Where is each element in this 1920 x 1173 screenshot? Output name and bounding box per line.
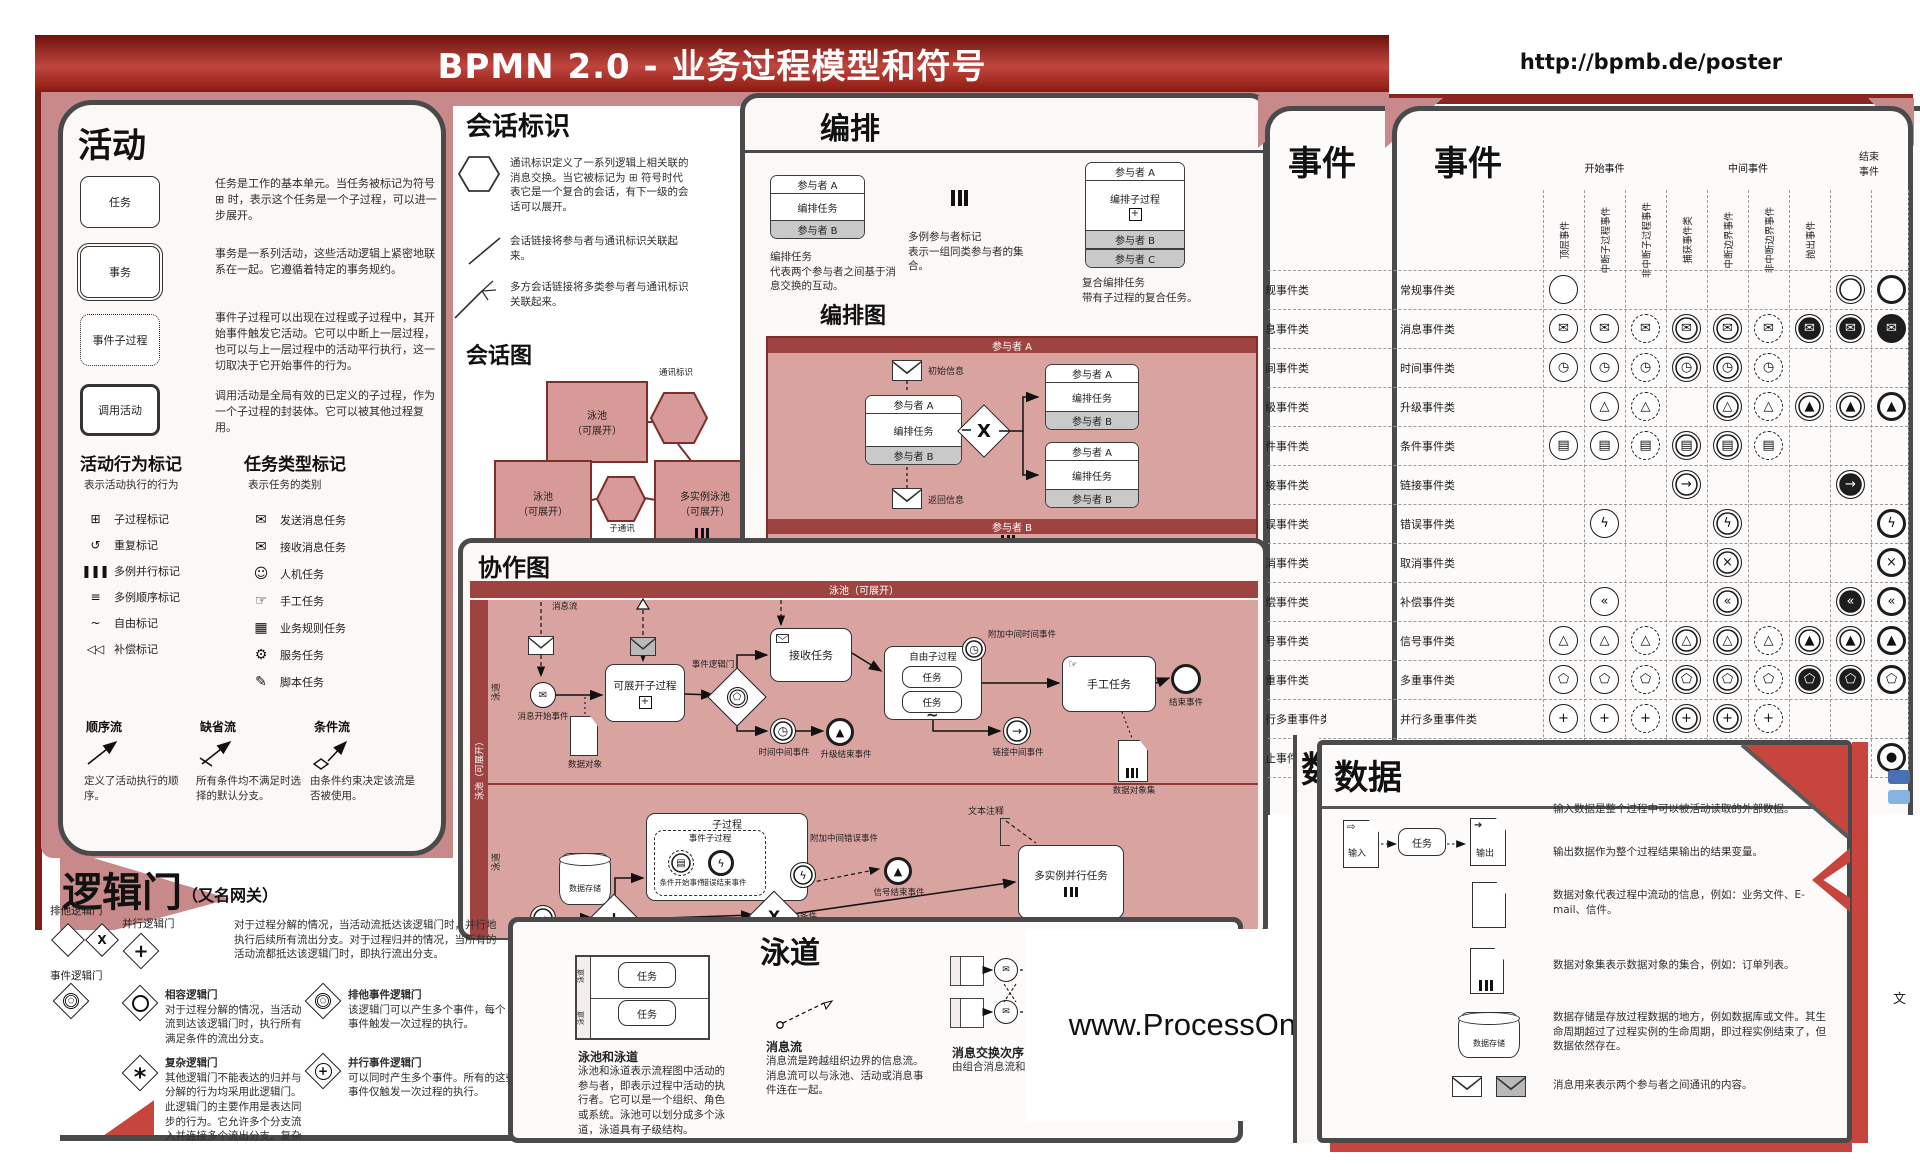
red-triangle-bottomleft <box>100 1092 154 1138</box>
behavior-marker-icon: ⊞ <box>84 512 106 526</box>
data-object-icon <box>1472 882 1506 928</box>
swimlanes-s2-desc: 消息流是跨越组织边界的信息流。消息流可以与泳池、活动或消息事件连在一起。 <box>766 1054 928 1098</box>
parallel-event-gateway-icon: + <box>305 1053 342 1090</box>
event-gateway-label: 事件逻辑门 <box>50 968 103 983</box>
tasktype-marker-item: ▦ 业务规则任务 <box>250 614 346 641</box>
conversation-link-icon <box>466 234 504 268</box>
choreography-task: 参与者 A 编排任务 参与者 B <box>770 175 865 239</box>
event-row-label-fragment: 错误事件类 <box>1266 504 1326 543</box>
behavior-marker-item: ~ 自由标记 <box>84 610 180 636</box>
conditional-flow-desc: 由条件约束决定该流是否被使用。 <box>310 774 420 803</box>
subprocess-label: 子过程 <box>712 816 742 831</box>
tasktype-marker-label: 手工任务 <box>280 593 324 609</box>
message-flow-icon <box>772 995 838 1031</box>
collab-attached-error-label: 附加中间错误事件 <box>810 834 902 845</box>
mini-task2-label: 任务 <box>637 1006 657 1021</box>
default-flow-desc: 所有条件均不满足时选择的默认分支。 <box>196 774 304 803</box>
event-row-label: 错误事件类 <box>1400 504 1510 543</box>
event-cell: ▲ <box>1795 626 1824 655</box>
tasktype-marker-item: ✎ 脚本任务 <box>250 668 346 695</box>
choreography-diagram-header: 编排图 <box>820 298 886 330</box>
event-row-label-fragment: 多重事件类 <box>1266 660 1326 699</box>
mini-lane1-label: 泳道 <box>576 961 586 991</box>
chor-task-top: 参与者 A <box>771 176 864 194</box>
event-subprocess-shape: 事件子过程 <box>80 314 160 366</box>
event-row-label-fragment: 升级事件类 <box>1266 387 1326 426</box>
conv-pool2: 泳池 （可展开） <box>494 460 592 546</box>
mini-lane1-task: 任务 <box>618 962 676 988</box>
tasktype-markers-caption: 表示任务的类别 <box>248 478 322 493</box>
chor-sub-b1: 参与者 B <box>1086 230 1184 249</box>
event-cell: ● <box>1877 743 1906 772</box>
data-item-4: 数据对象集表示数据对象的集合，例如：订单列表。 <box>1553 958 1825 973</box>
collab-error-end-label: 错误结束事件 <box>694 878 754 887</box>
conv-hex2-label: 子通讯 <box>600 524 644 535</box>
collab-message-start-event: ✉ <box>530 682 556 708</box>
inclusive-name: 相容逻辑门 <box>165 989 218 1001</box>
complex-gateway-icon: * <box>122 1055 159 1092</box>
adhoc-task1: 任务 <box>902 666 962 688</box>
conversation-item3-desc: 多方会话链接将多类参与者与通讯标识关联起来。 <box>510 280 695 309</box>
call-activity-desc: 调用活动是全局有效的已定义的子过程，作为一个子过程的封装体。它可以被其他过程复用… <box>215 388 437 436</box>
tasktype-marker-label: 发送消息任务 <box>280 512 346 528</box>
transaction-label: 事务 <box>109 264 131 280</box>
manual-task-label: 手工任务 <box>1087 676 1131 692</box>
collab-multi-instance-task: 多实例并行任务 <box>1018 845 1124 919</box>
choreography-subprocess: 参与者 A 编排子过程+ 参与者 B 参与者 C <box>1085 162 1185 268</box>
poster-title: BPMN 2.0 - 业务过程模型和符号 <box>438 39 987 88</box>
event-cell: + <box>1549 704 1578 733</box>
transaction-desc: 事务是一系列活动，这些活动逻辑上紧密地联系在一起。它遵循着特定的事务规约。 <box>215 246 437 278</box>
event-cell: ✉ <box>1836 314 1865 343</box>
exclusive-event-name: 排他事件逻辑门 <box>348 989 422 1001</box>
mini-task1-label: 任务 <box>637 968 657 983</box>
collab-annotation-label: 文本注释 <box>968 804 1004 817</box>
event-cell: ▤ <box>1631 431 1660 460</box>
conv-pool1: 泳池 （可展开） <box>546 381 648 463</box>
behavior-marker-label: 多例并行标记 <box>114 563 180 579</box>
event-cell: ✉ <box>1590 314 1619 343</box>
tasktype-marker-item: ✉ 发送消息任务 <box>250 506 346 533</box>
annotation-bracket <box>1000 818 1010 846</box>
choreography-task-caption: 编排任务 代表两个参与者之间基于消息交换的互动。 <box>770 250 905 294</box>
event-cell: ▲ <box>1795 392 1824 421</box>
event-cell: « <box>1836 587 1865 616</box>
event-row-label-fragment: 常规事件类 <box>1266 270 1326 309</box>
event-cell: + <box>1672 704 1701 733</box>
tasktype-marker-icon: ☺ <box>250 566 272 582</box>
event-cell: × <box>1877 548 1906 577</box>
event-cell: × <box>1713 548 1742 577</box>
data-collection-icon-bars <box>1478 980 1494 991</box>
expandable-label: 可展开子过程 <box>614 678 677 693</box>
manual-task-hand-icon: ☞ <box>1068 658 1078 671</box>
mini-lane2-task: 任务 <box>618 1000 676 1026</box>
task-shape: 任务 <box>80 176 160 228</box>
event-cell: + <box>1754 704 1783 733</box>
parallel-event-name: 并行事件逻辑门 <box>348 1057 422 1069</box>
events-grid: ✉✉✉✉✉✉✉✉✉ ◷◷◷◷◷◷ △△△△▲▲▲ ▤▤▤▤▤▤ →→ ϟϟϟ <box>1543 270 1912 777</box>
complex-desc: 其他逻辑门不能表达的归并与分解的行为均采用此逻辑门。此逻辑门的主要作用是表达同步… <box>165 1071 307 1144</box>
data-input-arrow-icon: ⇨ <box>1347 822 1355 833</box>
behavior-markers-list: ⊞ 子过程标记 ↺ 重复标记 ❚❚❚ 多例并行标记 ≡ 多例顺序标记 ~ 自由标… <box>84 506 180 662</box>
event-row-label: 多重事件类 <box>1400 660 1510 699</box>
behavior-marker-icon: ~ <box>84 616 106 630</box>
conversation-header: 会话标识 <box>466 106 570 143</box>
events-header-right: 事件 <box>1434 136 1502 185</box>
task-label: 任务 <box>109 194 131 210</box>
chor-connectors <box>768 338 1260 567</box>
behavior-marker-label: 重复标记 <box>114 537 158 553</box>
event-cell: △ <box>1631 626 1660 655</box>
data-msg-envelope-white <box>1452 1076 1482 1097</box>
sequence-flow-name: 顺序流 <box>86 718 122 735</box>
poster-url: http://bpmb.de/poster <box>1520 50 1782 74</box>
event-cell: ⬠ <box>1795 665 1824 694</box>
events-group-intermediate: 中间事件 <box>1666 160 1830 175</box>
tasktype-marker-item: ☞ 手工任务 <box>250 587 346 614</box>
behavior-marker-item: ⊞ 子过程标记 <box>84 506 180 532</box>
collab-signal-end-event: ▲ <box>884 857 912 885</box>
events-row-labels-left: 常规事件类消息事件类时间事件类升级事件类条件事件类链接事件类错误事件类取消事件类… <box>1266 270 1326 777</box>
choreography-header: 编排 <box>820 104 880 148</box>
activities-header: 活动 <box>78 118 146 167</box>
adhoc-tilde-marker: ~ <box>926 706 939 724</box>
behavior-markers-header: 活动行为标记 <box>80 450 182 475</box>
event-row-label: 并行多重事件类 <box>1400 699 1510 738</box>
event-cell: ⬠ <box>1877 665 1906 694</box>
collab-signal-end-label: 信号结束事件 <box>864 888 934 899</box>
event-cell: ✉ <box>1713 314 1742 343</box>
event-cell <box>1877 275 1906 304</box>
collab-timer-event: ◷ <box>770 718 796 744</box>
parallel-gateway-desc: 对于过程分解的情况，当活动流抵达该逻辑门时，并行地执行后续所有流出分支。对于过程… <box>234 918 506 962</box>
event-row-label: 信号事件类 <box>1400 621 1510 660</box>
blue-fragment-2 <box>1888 790 1910 804</box>
multi-task-label: 多实例并行任务 <box>1034 868 1108 883</box>
event-row-label: 条件事件类 <box>1400 426 1510 465</box>
event-cell: ▲ <box>1836 392 1865 421</box>
event-cell: ✉ <box>1754 314 1783 343</box>
call-activity-label: 调用活动 <box>98 402 142 418</box>
event-cell: ⬠ <box>1754 665 1783 694</box>
inclusive-desc: 对于过程分解的情况，当活动流到达该逻辑门时，执行所有满足条件的流出分支。 <box>165 1003 305 1047</box>
event-cell: ϟ <box>1877 509 1906 538</box>
event-gateway-icon: ⬠ <box>53 983 90 1020</box>
chor-task-bottom: 参与者 B <box>771 220 864 238</box>
behavior-marker-item: ◁◁ 补偿标记 <box>84 636 180 662</box>
collab-data-store-label: 数据存储 <box>562 884 608 894</box>
tasktype-marker-icon: ✉ <box>250 512 272 528</box>
chor-sub-b2: 参与者 C <box>1086 249 1184 267</box>
inclusive-gateway-icon <box>122 985 159 1022</box>
collab-attached-timer-event: ◷ <box>962 637 986 661</box>
collab-data-collection-label: 数据对象集 <box>1102 786 1166 797</box>
event-row-label: 消息事件类 <box>1400 309 1510 348</box>
behavior-marker-icon: ◁◁ <box>84 642 106 656</box>
tasktype-markers-header: 任务类型标记 <box>244 450 346 475</box>
collab-end-event <box>1171 664 1201 694</box>
event-cell: ▲ <box>1877 626 1906 655</box>
collab-attached-error-event: ϟ <box>790 862 816 888</box>
event-row-label-fragment: 并行多重事件类 <box>1266 699 1326 738</box>
collab-link-event-label: 链接中间事件 <box>980 748 1056 759</box>
event-subprocess-label2: 事件子过程 <box>689 832 732 844</box>
receive-task-envelope-icon <box>776 634 789 643</box>
events-group-end: 结束 事件 <box>1846 148 1892 178</box>
event-cell: → <box>1836 470 1865 499</box>
tasktype-marker-icon: ☞ <box>250 593 272 609</box>
event-cell: ✉ <box>1549 314 1578 343</box>
behavior-marker-label: 自由标记 <box>114 615 158 631</box>
event-cell: ⬠ <box>1713 665 1742 694</box>
swimlanes-s3-name: 消息交换次序 <box>952 1044 1024 1061</box>
tasktype-marker-icon: ✉ <box>250 539 272 555</box>
event-cell: ◷ <box>1754 353 1783 382</box>
x-glyph: X <box>91 929 113 951</box>
conditional-flow-icon <box>312 736 352 770</box>
tasktype-marker-icon: ▦ <box>250 620 272 636</box>
swimlanes-s2-name: 消息流 <box>766 1038 802 1055</box>
bpmn-poster: BPMN 2.0 - 业务过程模型和符号 http://bpmb.de/post… <box>0 0 1920 1173</box>
event-row-label: 时间事件类 <box>1400 348 1510 387</box>
event-gateway-glyph2: ⬠ <box>59 989 83 1013</box>
chor-sub-mid: 编排子过程+ <box>1086 181 1184 230</box>
event-cell: + <box>1631 704 1660 733</box>
data-flow-arrows <box>1379 840 1473 850</box>
event-cell: + <box>1590 704 1619 733</box>
data-header: 数据 <box>1334 750 1402 799</box>
event-cell: ▤ <box>1590 431 1619 460</box>
collab-data-object <box>570 716 598 756</box>
event-cell: ✉ <box>1672 314 1701 343</box>
title-band: BPMN 2.0 - 业务过程模型和符号 <box>35 35 1389 92</box>
mini-lane2-label: 泳道 <box>576 1003 586 1033</box>
event-cell: ▤ <box>1713 431 1742 460</box>
behavior-marker-item: ↺ 重复标记 <box>84 532 180 558</box>
text-fragment: 文 <box>1893 988 1906 1007</box>
adhoc-label: 自由子过程 <box>909 649 957 663</box>
tasktype-marker-label: 人机任务 <box>280 566 324 582</box>
collab-conditional-start-event: ▤ <box>668 850 694 876</box>
events-header-left: 事件 <box>1288 136 1356 185</box>
choreography-header-divider <box>745 150 1263 153</box>
collab-escalation-end-label: 升级结束事件 <box>808 750 884 761</box>
conv-hex1 <box>650 392 708 444</box>
gateways-subtitle: （又名网关） <box>182 882 278 906</box>
event-cell: ◷ <box>1590 353 1619 382</box>
transaction-shape: 事务 <box>80 246 160 298</box>
event-row-label-fragment: 消息事件类 <box>1266 309 1326 348</box>
complex-gateway-text: 复杂逻辑门其他逻辑门不能表达的归并与分解的行为均采用此逻辑门。此逻辑门的主要作用… <box>165 1056 307 1144</box>
tasktype-marker-label: 脚本任务 <box>280 674 324 690</box>
choreography-sub-caption: 复合编排任务 带有子过程的复合任务。 <box>1082 276 1242 305</box>
data-store-icon <box>1458 1012 1520 1058</box>
collab-msgflow-label: 消息流 <box>552 600 578 612</box>
event-row-label: 常规事件类 <box>1400 270 1510 309</box>
behavior-marker-label: 多例顺序标记 <box>114 589 180 605</box>
event-cell: ◷ <box>1631 353 1660 382</box>
event-row-label: 补偿事件类 <box>1400 582 1510 621</box>
collab-escalation-end-event: ▲ <box>826 718 854 746</box>
event-cell: △ <box>1590 626 1619 655</box>
data-panel-duplicate-strip: 数据 <box>1293 735 1319 1143</box>
swimlanes-s1-name: 泳池和泳道 <box>578 1048 638 1065</box>
conversation-hexagon-icon <box>458 156 500 192</box>
chor-task-mid: 编排任务 <box>771 194 864 220</box>
event-row-label: 升级事件类 <box>1400 387 1510 426</box>
data-output-label: 输出 <box>1476 846 1494 859</box>
choreography-multi-marker <box>950 190 969 206</box>
tasktype-marker-item: ⚙ 服务任务 <box>250 641 346 668</box>
subprocess-plus-marker: + <box>1129 208 1142 221</box>
url-panel: http://bpmb.de/poster <box>1389 30 1913 94</box>
event-cell: ◷ <box>1672 353 1701 382</box>
choreography-multi-caption: 多例参与者标记 表示一组同类参与者的集合。 <box>908 230 1033 274</box>
swimlanes-header: 泳道 <box>760 928 820 972</box>
event-row-label-fragment: 取消事件类 <box>1266 543 1326 582</box>
event-cell: ✉ <box>1795 314 1824 343</box>
circle-plus-glyph: + <box>311 1059 335 1083</box>
event-cell: ⬠ <box>1590 665 1619 694</box>
event-cell: ▲ <box>1836 626 1865 655</box>
behavior-markers-caption: 表示活动执行的行为 <box>84 478 179 493</box>
behavior-marker-item: ❚❚❚ 多例并行标记 <box>84 558 180 584</box>
tasktype-marker-item: ☺ 人机任务 <box>250 560 346 587</box>
collab-error-end-event: ϟ <box>708 850 734 876</box>
exclusive-event-gateway-text: 排他事件逻辑门该逻辑门可以产生多个事件，每个事件触发一次过程的执行。 <box>348 988 508 1032</box>
conversation-diagram-header: 会话图 <box>466 338 532 370</box>
parallel-event-desc: 可以同时产生多个事件。所有的这些事件仅触发一次过程的执行。 <box>348 1071 516 1100</box>
event-cell: ▤ <box>1754 431 1783 460</box>
chor-sub-top: 参与者 A <box>1086 163 1184 181</box>
collab-msg-envelope <box>528 636 554 655</box>
event-cell: △ <box>1549 626 1578 655</box>
chor-sub-label: 编排子过程 <box>1110 191 1160 206</box>
event-cell: △ <box>1672 626 1701 655</box>
multi-task-bars <box>1063 887 1079 897</box>
event-pentagon-glyph: ⬠ <box>311 989 335 1013</box>
data-input-label: 输入 <box>1348 846 1366 859</box>
plus-glyph: + <box>129 939 153 963</box>
sequence-flow-desc: 定义了活动执行的顺序。 <box>84 774 190 803</box>
data-msg-envelope-gray <box>1496 1076 1526 1097</box>
event-cell: ✉ <box>1631 314 1660 343</box>
receive-task-label: 接收任务 <box>789 647 833 663</box>
circle-glyph <box>128 991 152 1015</box>
event-row-label-fragment: 信号事件类 <box>1266 621 1326 660</box>
event-row-label: 取消事件类 <box>1400 543 1510 582</box>
event-cell: « <box>1713 587 1742 616</box>
default-flow-name: 缺省流 <box>200 718 236 735</box>
sequence-flow-icon <box>84 736 124 770</box>
event-cell: ⬠ <box>1672 665 1701 694</box>
behavior-marker-icon: ❚❚❚ <box>84 564 106 578</box>
tasktype-marker-icon: ✎ <box>250 674 272 690</box>
data-collection-bars <box>1125 768 1140 778</box>
tasktype-marker-label: 服务任务 <box>280 647 324 663</box>
event-row-label-fragment: 时间事件类 <box>1266 348 1326 387</box>
call-activity-shape: 调用活动 <box>80 384 160 436</box>
collab-attached-timer-label: 附加中间时间事件 <box>988 630 1068 641</box>
data-panel-fold-line <box>1742 745 1848 837</box>
event-cell: « <box>1590 587 1619 616</box>
event-cell: → <box>1672 470 1701 499</box>
collab-expandable-subprocess: 可展开子过程+ <box>605 664 685 722</box>
collab-msg-envelope-gray <box>630 637 656 656</box>
collab-data-object-label: 数据对象 <box>554 760 616 771</box>
event-row-label: 链接事件类 <box>1400 465 1510 504</box>
data-item-3: 数据对象代表过程中流动的信息，例如：业务文件、E-mail、信件。 <box>1553 888 1828 917</box>
event-cell: ⬠ <box>1836 665 1865 694</box>
event-cell: ▤ <box>1549 431 1578 460</box>
collab-end-event-label: 结束事件 <box>1156 698 1216 709</box>
event-cell: ▲ <box>1877 392 1906 421</box>
behavior-marker-icon: ↺ <box>84 538 106 552</box>
data-store-icon-label: 数据存储 <box>1466 1038 1512 1049</box>
adhoc-task1-label: 任务 <box>922 670 941 684</box>
subprocess-plus-marker: + <box>639 696 652 709</box>
event-cell: △ <box>1631 392 1660 421</box>
event-cell: « <box>1877 587 1906 616</box>
behavior-marker-item: ≡ 多例顺序标记 <box>84 584 180 610</box>
exclusive-gateway-label: 排他逻辑门 <box>50 903 103 918</box>
conv-hex1-label: 通讯标识 <box>640 368 712 379</box>
event-cell: ▤ <box>1672 431 1701 460</box>
event-cell: ⬠ <box>1549 665 1578 694</box>
conversation-fork-icon <box>452 278 500 322</box>
tasktype-marker-item: ✉ 接收消息任务 <box>250 533 346 560</box>
event-cell: ◷ <box>1713 353 1742 382</box>
event-cell: △ <box>1590 392 1619 421</box>
parallel-event-gateway-text: 并行事件逻辑门可以同时产生多个事件。所有的这些事件仅触发一次过程的执行。 <box>348 1056 516 1100</box>
tasktype-markers-list: ✉ 发送消息任务 ✉ 接收消息任务 ☺ 人机任务 ☞ 手工任务 ▦ 业务规则任务 <box>250 506 346 695</box>
event-cell: △ <box>1713 392 1742 421</box>
event-cell: ϟ <box>1713 509 1742 538</box>
event-subprocess-desc: 事件子过程可以出现在过程或子过程中，其开始事件触发它活动。它可以中断上一层过程，… <box>215 310 437 374</box>
inclusive-gateway-text: 相容逻辑门对于过程分解的情况，当活动流到达该逻辑门时，执行所有满足条件的流出分支… <box>165 988 305 1047</box>
event-cell <box>1549 275 1578 304</box>
conversation-item1-desc: 通讯标识定义了一系列逻辑上相关联的消息交换。当它被标记为 ⊞ 符号时代表它是一个… <box>510 156 690 215</box>
event-cell: △ <box>1713 626 1742 655</box>
events-row-labels-right: 常规事件类消息事件类时间事件类升级事件类条件事件类链接事件类错误事件类取消事件类… <box>1400 270 1510 777</box>
behavior-marker-icon: ≡ <box>84 590 106 604</box>
event-row-label-fragment: 补偿事件类 <box>1266 582 1326 621</box>
tasktype-marker-label: 业务规则任务 <box>280 620 346 636</box>
parallel-gateway-icon: + <box>123 933 160 970</box>
event-cell: △ <box>1754 392 1783 421</box>
parallel-gateway-name: 并行逻辑门 <box>122 916 175 931</box>
task-desc: 任务是工作的基本单元。当任务被标记为符号 ⊞ 时，表示这个任务是一个子过程，可以… <box>215 176 437 224</box>
conditional-flow-name: 条件流 <box>314 718 350 735</box>
behavior-marker-label: 子过程标记 <box>114 511 169 527</box>
event-cell: ⬠ <box>1631 665 1660 694</box>
event-cell: ✉ <box>1877 314 1906 343</box>
conversation-item2-desc: 会话链接将参与者与通讯标识关联起来。 <box>510 234 690 263</box>
url-panel-underline <box>1389 94 1913 104</box>
default-flow-icon <box>198 736 238 770</box>
event-cell: + <box>1713 704 1742 733</box>
swimlanes-s1-desc: 泳池和泳道表示流程图中活动的参与者，即表示过程中活动的执行者。它可以是一个组织、… <box>578 1064 730 1137</box>
event-row-label-fragment: 条件事件类 <box>1266 426 1326 465</box>
conv-hex2 <box>596 476 646 522</box>
exclusive-event-desc: 该逻辑门可以产生多个事件，每个事件触发一次过程的执行。 <box>348 1003 508 1032</box>
event-cell: ϟ <box>1590 509 1619 538</box>
data-item-2: 输出数据作为整个过程结果输出的结果变量。 <box>1553 845 1825 860</box>
collab-open-arrowhead <box>636 598 650 610</box>
data-output-arrow-icon: ➔ <box>1474 820 1482 831</box>
event-cell: △ <box>1754 626 1783 655</box>
